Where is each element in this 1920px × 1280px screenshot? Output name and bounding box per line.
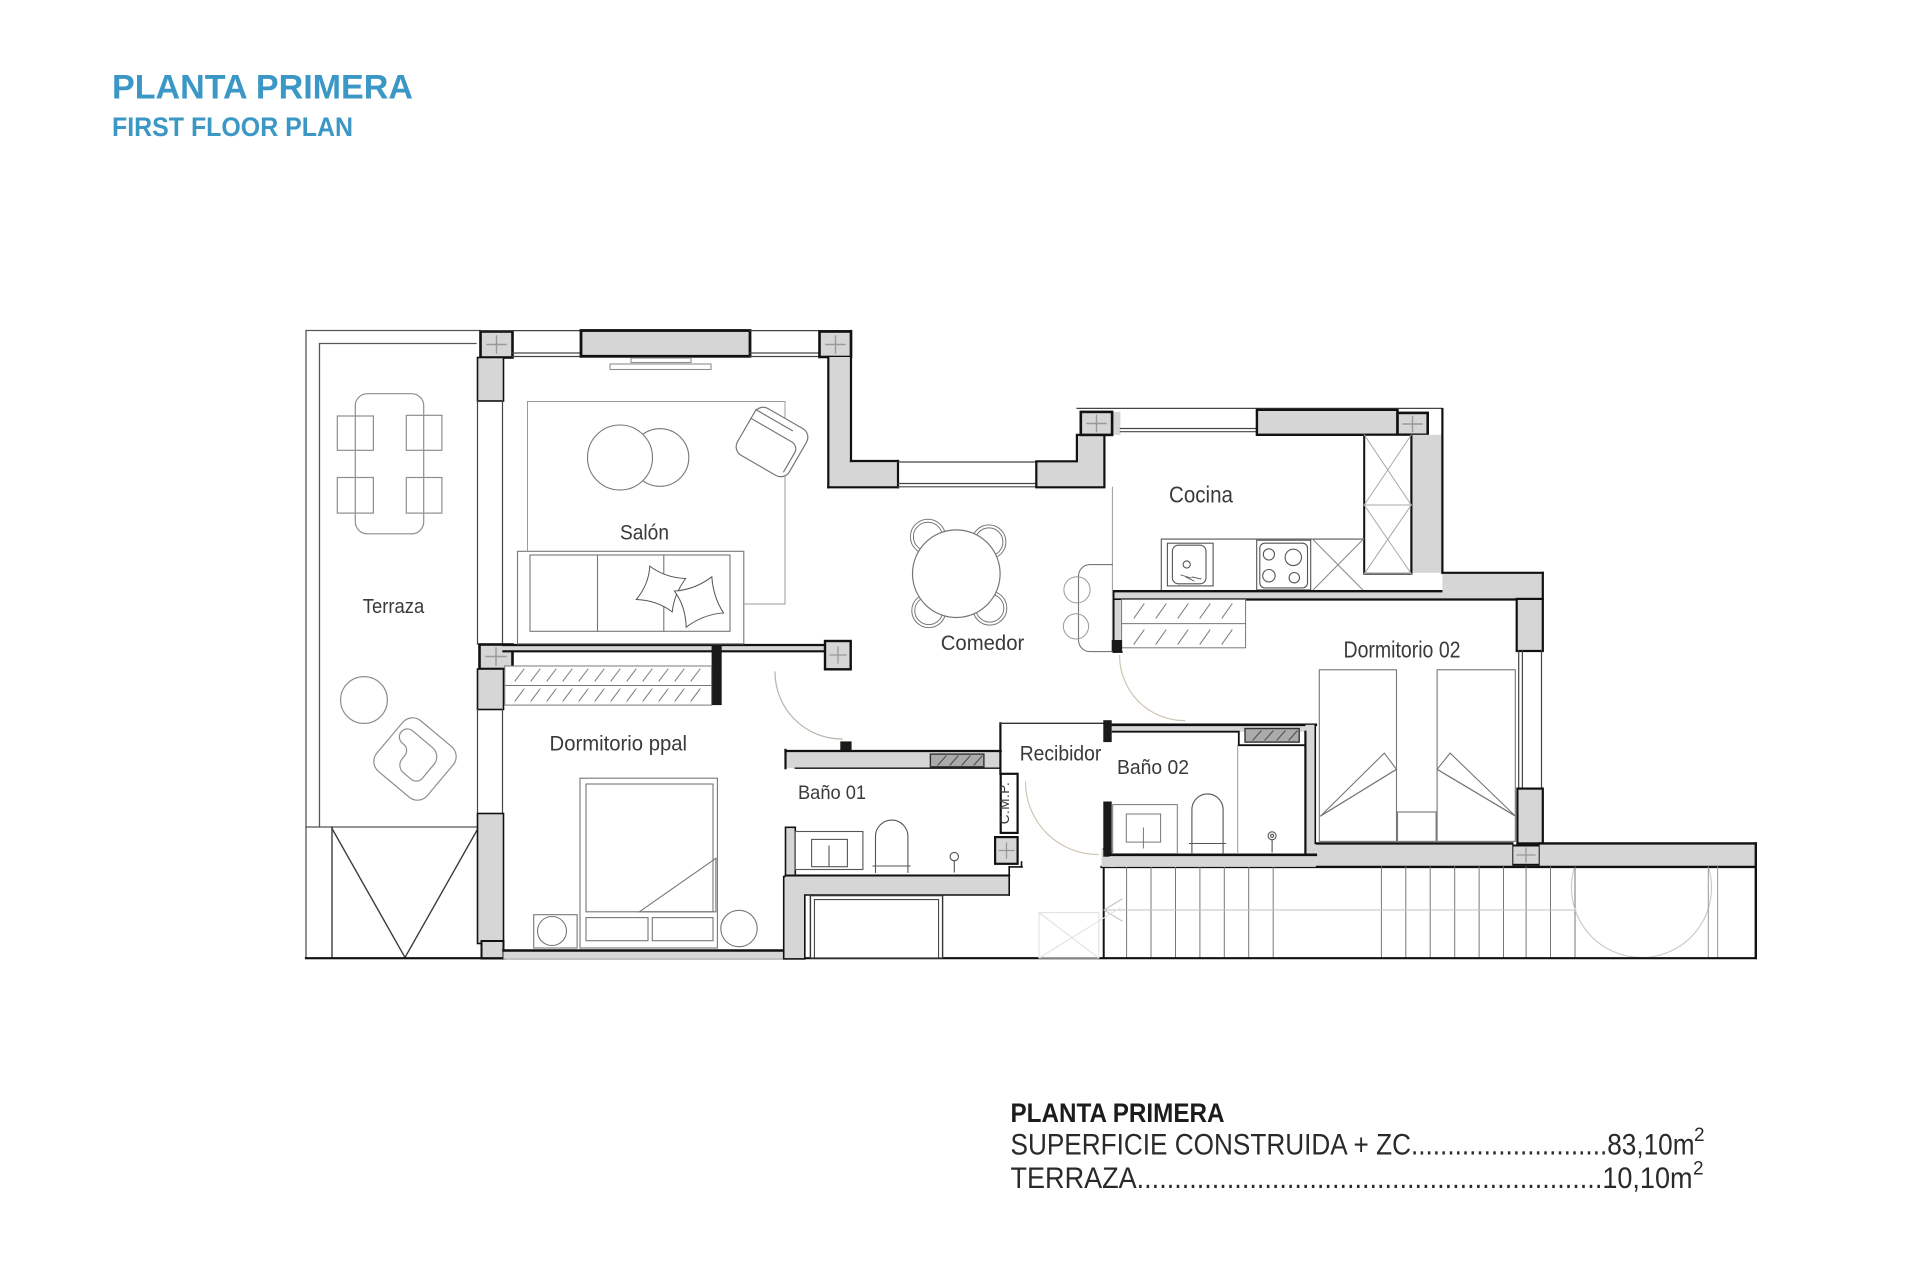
svg-text:FIRST FLOOR PLAN: FIRST FLOOR PLAN (112, 112, 353, 142)
svg-text:Dormitorio ppal: Dormitorio ppal (550, 733, 688, 756)
svg-text:Cocina: Cocina (1169, 482, 1233, 508)
svg-text:Salón: Salón (620, 522, 669, 545)
svg-text:2: 2 (1694, 1125, 1705, 1146)
svg-text:Baño 02: Baño 02 (1117, 757, 1189, 779)
svg-text:2: 2 (1693, 1159, 1704, 1180)
svg-text:PLANTA PRIMERA: PLANTA PRIMERA (112, 69, 413, 107)
svg-text:C.M.P.: C.M.P. (997, 782, 1012, 825)
svg-text:Baño 01: Baño 01 (798, 782, 866, 804)
svg-text:Comedor: Comedor (941, 632, 1025, 655)
svg-text:TERRAZA.......................: TERRAZA.................................… (1011, 1162, 1693, 1195)
svg-text:Recibidor: Recibidor (1020, 742, 1102, 766)
svg-text:PLANTA PRIMERA: PLANTA PRIMERA (1011, 1098, 1225, 1128)
svg-text:Terraza: Terraza (363, 596, 425, 618)
svg-text:SUPERFICIE CONSTRUIDA + ZC....: SUPERFICIE CONSTRUIDA + ZC..............… (1011, 1129, 1695, 1162)
svg-text:Dormitorio 02: Dormitorio 02 (1344, 637, 1461, 663)
